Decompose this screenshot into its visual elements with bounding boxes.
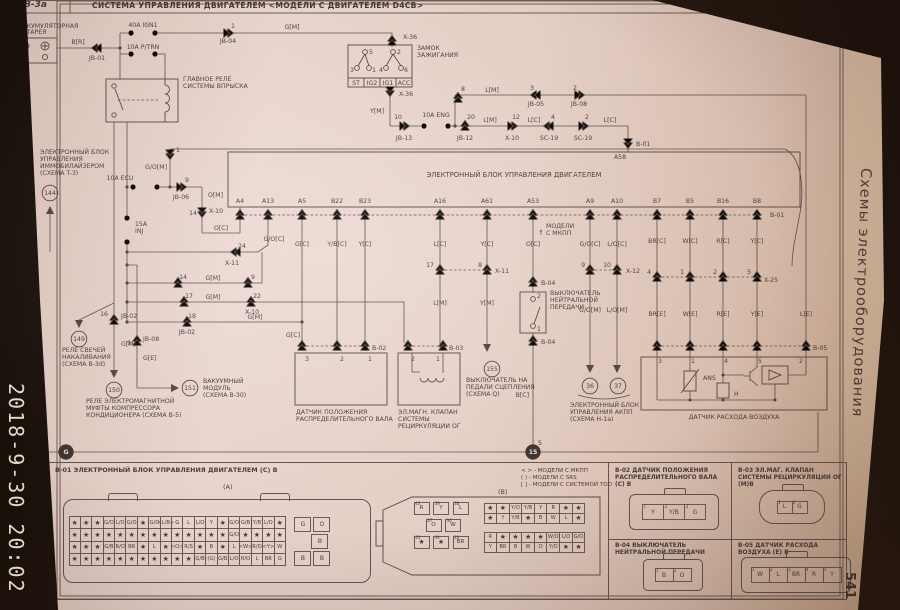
connector-pin-cell: O	[534, 542, 548, 553]
diagram-label: 2	[585, 114, 589, 121]
diagram-label: A58	[614, 154, 626, 161]
diagram-label: 2	[799, 358, 803, 365]
diagram-code: B-3a	[24, 0, 47, 10]
diagram-label: 149	[73, 336, 85, 343]
diagram-label: РЕЛЕ СВЕЧЕЙ	[62, 345, 106, 354]
pin-row: ★★★★★★★★★★★(G/B)(G)G/BL/OR/OLBRG	[69, 553, 285, 565]
diagram-label: L[E]	[800, 311, 812, 318]
diagram-label: 24	[238, 243, 246, 250]
connector-pin-cell: BR	[496, 542, 510, 553]
diagram-label: B16	[717, 198, 729, 205]
diagram-label: A9	[586, 198, 594, 205]
diagram-label: ЗАМОК	[417, 45, 440, 52]
connector-pin-cell: 4R	[805, 567, 824, 583]
diagram-label: МОДУЛЬ	[203, 385, 231, 392]
junction-dots	[118, 46, 776, 401]
diagram-label: 1	[372, 67, 376, 74]
diagram-label: 5	[369, 49, 373, 56]
diagram-label: L[M]	[483, 117, 497, 124]
diagram-label: УПРАВЛЕНИЯ АКПП	[570, 409, 633, 416]
diagram-label: ИММОБИЛАЙЗЕРОМ	[40, 161, 104, 170]
diagram-label: G	[63, 449, 68, 456]
diagram-label: 36	[586, 383, 594, 390]
pin-row: R★★★★W/OL/OG/O	[484, 532, 585, 542]
diagram-label: B7	[653, 198, 661, 205]
diagram-label: 12	[512, 114, 520, 121]
diagram-label: G[C]	[295, 241, 309, 248]
diagram-label: L[C]	[604, 117, 617, 124]
diagram-label: МОДЕЛИ	[546, 223, 575, 230]
connector-pin-cell: W	[546, 513, 560, 524]
diagram-label: G[M]	[206, 294, 221, 301]
diagram-label: 10A ENG	[422, 112, 450, 119]
connector-pin-cell: 36W	[445, 519, 461, 532]
diagram-label: 4	[551, 114, 555, 121]
b05-connector: 1W2L3BR4R5Y	[741, 557, 851, 593]
diagram-label: 10A ECU	[107, 175, 134, 182]
diagram-label: JB-04	[219, 38, 236, 45]
diagram-label: B-04	[541, 339, 555, 346]
diagram-label: (СХЕМА Q)	[466, 391, 500, 398]
diagram-label: A10	[611, 198, 623, 205]
diagram-label: X-11	[225, 260, 239, 267]
connector-pin-cell: O	[313, 517, 330, 532]
diagram-label: 10	[394, 114, 402, 121]
diagram-label: B22	[331, 198, 343, 205]
diagram-label: (СХЕМА T-3)	[40, 170, 78, 177]
connector-b-left: 40R39Y38L 37O36W 35★34★33BR	[414, 502, 473, 553]
diagram-label: X-10	[505, 135, 519, 142]
diagram-label: 1	[680, 269, 684, 276]
diagram-label: ЭЛЕКТРОННЫЙ БЛОК	[570, 400, 640, 409]
connector-pin-cell: 2L	[769, 567, 788, 583]
diagram-label: JB-08	[570, 101, 587, 108]
diagram-label: SC-19	[574, 135, 592, 142]
page-number: 541	[842, 572, 857, 599]
diagram-label: 2	[411, 356, 415, 363]
pin-row: ★★Y/OY/BYR★★	[484, 503, 585, 513]
diagram-label: R[C]	[716, 238, 729, 245]
diagram-label: B-05	[813, 345, 827, 352]
diagram-label: B[R]	[71, 39, 84, 46]
connector-pin-cell: ★	[572, 542, 586, 553]
connector-pin-cell: 2G	[792, 501, 808, 514]
diagram-label: Y[C]	[480, 241, 494, 248]
pin-row: ★YY/B★BWL★	[484, 513, 585, 523]
diagram-label: КОНДИЦИОНЕРА (СХЕМА B-5)	[86, 412, 181, 419]
diagram-label: 16	[100, 311, 108, 318]
diagram-label: R[E]	[716, 311, 729, 318]
diagram-label: L/O[M]	[607, 307, 628, 314]
diagram-label: 3	[658, 358, 662, 365]
connector-pin-cell: B	[294, 551, 311, 566]
diagram-label: ANS	[703, 375, 716, 382]
diagram-label: 10A P/TRN	[127, 44, 160, 51]
diagram-label: 17	[426, 262, 434, 269]
diagram-label: ACC	[398, 80, 411, 87]
b01-title: B-01 ЭЛЕКТРОННЫЙ БЛОК УПРАВЛЕНИЯ ДВИГАТЕ…	[55, 466, 278, 474]
diagram-label: ДАТЧИК РАСХОДА ВОЗДУХА	[689, 414, 780, 421]
connector-pin-cell: 3G	[684, 504, 706, 520]
connector-pin-cell: Y	[496, 513, 510, 524]
diagram-label: 1	[176, 147, 180, 154]
diagram-label: РАСПРЕДЕЛИТЕЛЬНОГО ВАЛА	[296, 416, 393, 423]
diagram-label: JB-08	[142, 336, 159, 343]
diagram-label: IG1	[383, 80, 394, 87]
diagram-label: 14	[179, 274, 187, 281]
diagram-label: X-36	[399, 91, 413, 98]
diagram-label: B-02	[372, 345, 386, 352]
diagram-label: 9	[251, 274, 255, 281]
connector-pin-cell: Y/B	[509, 513, 523, 524]
diagram-label: 1	[368, 356, 372, 363]
connector-pin-cell: 35★	[414, 536, 430, 549]
diagram-label: 2	[537, 293, 541, 300]
diagram-label: 1	[691, 358, 695, 365]
diagram-label: 3	[305, 356, 309, 363]
connector-b-label: (B)	[498, 488, 508, 496]
legend: < > - МОДЕЛИ С МКПП ( ) - МОДЕЛИ С SRS […	[521, 468, 612, 489]
connector-pin-cell: B	[311, 534, 328, 549]
camera-timestamp: 2018-9-30 20:02	[4, 383, 28, 594]
diagram-label: A4	[236, 198, 244, 205]
diagram-label: (СХЕМА H-1a)	[570, 416, 613, 423]
diagram-label: 2	[573, 85, 577, 92]
connector-pin-cell: ★	[559, 542, 573, 553]
panel-divider	[731, 463, 732, 599]
diagram-label: 2	[340, 356, 344, 363]
diagram-label: 14	[189, 210, 197, 217]
diagram-label: X-25	[764, 277, 778, 284]
diagram-label: JB-13	[395, 135, 412, 142]
b03-connector: 1L2G	[759, 490, 825, 524]
diagram-label: 9	[185, 177, 189, 184]
diagram-label: JB-06	[172, 194, 189, 201]
diagram-label: O[C]	[214, 225, 228, 232]
legend-item: [ ] - МОДЕЛИ С СИСТЕМОЙ TOD	[521, 482, 612, 489]
diagram-label: Y[C]	[750, 238, 764, 245]
diagram-label: ВЫКЛЮЧАТЕЛЬ НА	[466, 377, 528, 384]
diagram-label: B-03	[449, 345, 463, 352]
pin-row: ★★★G/OL/OG/O★G/O<L/B>GLL/OY★G/OG/B[Y/B]L…	[69, 517, 285, 529]
diagram-label: JB-05	[527, 101, 544, 108]
diagram-label: 5	[747, 269, 751, 276]
diagram-label: 15	[529, 449, 538, 456]
connector-pin-cell: L	[559, 513, 573, 524]
diagram-label: НЕЙТРАЛЬНОЙ	[550, 295, 598, 304]
diagram-label: 5	[538, 440, 542, 447]
diagram-label: 37	[614, 383, 622, 390]
diagram-label: G/O[M]	[145, 164, 167, 171]
diagram-label: G[M]	[248, 314, 263, 321]
connector-pin-cell: 1Y	[642, 504, 664, 520]
diagram-label: A13	[262, 198, 274, 205]
diagram-title: СИСТЕМА УПРАВЛЕНИЯ ДВИГАТЕЛЕМ <МОДЕЛИ С …	[92, 1, 423, 10]
diagram-label: G[M]	[285, 24, 300, 31]
diagram-label: X-36	[403, 34, 417, 41]
diagram-label: X-12	[626, 268, 640, 275]
diagram-label: ЭЛЕКТРОННЫЙ БЛОК	[40, 147, 110, 156]
diagram-label: A16	[434, 198, 446, 205]
connector-a-side: GO B BB	[293, 516, 331, 567]
diagram-label: 1	[436, 356, 440, 363]
diagram-label: JB-02	[178, 329, 195, 336]
diagram-label: 15A	[135, 221, 148, 228]
diagram-label: L[M]	[485, 87, 499, 94]
connector-pin-cell: ★	[521, 513, 535, 524]
diagram-label: G[C]	[286, 332, 300, 339]
b04-connector: 1B2O	[643, 559, 703, 591]
diagram-label: ВАКУУМНЫЙ	[203, 376, 244, 385]
diagram-label: O[C]	[526, 241, 540, 248]
pin-row: ★★★★★★★★★★★★★★G/O★★★★	[69, 529, 285, 541]
photo-scene: B-3a СИСТЕМА УПРАВЛЕНИЯ ДВИГАТЕЛЕМ <МОДЕ…	[0, 0, 900, 610]
diagram-label: ВЫКЛЮЧАТЕЛЬ	[550, 290, 601, 297]
connector-pin-cell: 3BR	[787, 567, 806, 583]
diagram-label: L[C]	[434, 241, 447, 248]
diagram-label: 10	[603, 262, 611, 269]
diagram-label: X-11	[495, 268, 509, 275]
connector-pin-cell: G	[294, 517, 311, 532]
connector-pin-cell: 39Y	[433, 502, 449, 515]
diagram-label: L[M]	[433, 300, 447, 307]
connector-pin-cell: Y/O	[546, 542, 560, 553]
diagram-label: УПРАВЛЕНИЯ	[40, 156, 83, 163]
diagram-label: 5	[758, 358, 762, 365]
diagram-label: BR[C]	[648, 238, 666, 245]
diagram-label: W[E]	[683, 311, 698, 318]
diagram-label: B-01	[770, 212, 784, 219]
diagram-label: JB-12	[456, 135, 473, 142]
diagram-label: B-04	[541, 280, 555, 287]
diagram-label: 144	[44, 190, 56, 197]
page-header: B-3a СИСТЕМА УПРАВЛЕНИЯ ДВИГАТЕЛЕМ <МОДЕ…	[0, 0, 843, 13]
diagram-label: IG2	[367, 80, 378, 87]
diagram-label: БАТАРЕЯ	[18, 29, 46, 36]
connector-pin-cell: 1W	[751, 567, 770, 583]
diagram-label: 1	[231, 23, 235, 30]
diagram-label: B5	[686, 198, 694, 205]
diagram-label: ↑	[538, 229, 544, 237]
diagram-label: X-10	[209, 208, 223, 215]
wires	[25, 33, 818, 452]
diagram-label: 8	[461, 86, 465, 93]
diagram-label: ПЕДАЛИ СЦЕПЛЕНИЯ	[466, 384, 535, 391]
diagram-labels: АККУМУЛЯТОРНАЯБАТАРЕЯ40A IGN110A P/TRNB[…	[18, 22, 827, 459]
diagram-label: B-01	[636, 141, 650, 148]
diagram-label: G[M]	[206, 275, 221, 282]
diagram-label: B[C]	[516, 392, 529, 399]
connector-b-pinout: 40R39Y38L 37O36W 35★34★33BR ★★Y/OY/BYR★★…	[384, 498, 601, 576]
connector-pin-cell: Y	[484, 542, 498, 553]
diagram-label: JB-02	[120, 313, 137, 320]
connector-pin-cell: B	[509, 542, 523, 553]
diagram-label: SC-19	[540, 135, 558, 142]
connector-pin-cell: ★	[484, 513, 498, 524]
connector-pin-cell: W	[521, 542, 535, 553]
diagram-label: 9	[581, 262, 585, 269]
diagram-label: НАКАЛИВАНИЯ	[62, 354, 111, 361]
diagram-label: ST	[352, 80, 360, 87]
diagram-label: Y[M]	[369, 108, 384, 115]
connector-a-label: (A)	[223, 483, 233, 491]
diagram-label: G/O[C]	[580, 241, 601, 248]
diagram-label: Y[E]	[750, 311, 764, 318]
diagram-label: ЭЛ.МАГН. КЛАПАН	[398, 409, 458, 416]
diagram-label: 4	[724, 358, 728, 365]
diagram-label: ЗАЖИГАНИЯ	[417, 52, 458, 59]
connector-pin-cell: 2Y/B	[663, 504, 685, 520]
diagram-label: INJ	[135, 228, 143, 235]
panel-divider	[608, 539, 846, 540]
connector-pin-cell: 2O	[673, 568, 692, 582]
diagram-label: O[M]	[208, 192, 223, 199]
diagram-label: 18	[188, 313, 196, 320]
diagram-label: ПЕРЕДАЧИ	[550, 304, 585, 311]
diagram-label: ДАТЧИК ПОЛОЖЕНИЯ	[296, 409, 367, 416]
diagram-label: Y/B[C]	[326, 241, 346, 248]
diagram-label: A53	[527, 198, 539, 205]
connector-pin-cell: 40R	[414, 502, 430, 515]
diagram-label: 17	[185, 293, 193, 300]
diagram-label: РЕЛЕ ЭЛЕКТРОМАГНИТНОЙ	[86, 396, 175, 405]
diagram-label: W[C]	[682, 238, 697, 245]
diagram-label: A5	[298, 198, 306, 205]
diagram-label: B8	[753, 198, 761, 205]
diagram-label: 3	[530, 85, 534, 92]
diagram-label: 9	[127, 340, 131, 347]
legend-item: < > - МОДЕЛИ С МКПП	[521, 468, 612, 475]
connector-panel: B-01 ЭЛЕКТРОННЫЙ БЛОК УПРАВЛЕНИЯ ДВИГАТЕ…	[48, 462, 847, 600]
diagram-label: СИСТЕМЫ ВПРЫСКА	[183, 83, 249, 90]
b02-title: B-02 ДАТЧИК ПОЛОЖЕНИЯ РАСПРЕДЕЛИТЕЛЬНОГО…	[615, 468, 727, 489]
diagram-label: G/O[C]	[264, 236, 285, 243]
diagram-label: 1	[537, 326, 541, 333]
connector-pin-cell: 38L	[453, 502, 469, 515]
connector-pin-cell: G	[274, 553, 286, 566]
connector-pin-cell: 5Y	[823, 567, 842, 583]
diagram-label: L/O[C]	[607, 241, 627, 248]
connector-pin-cell: 37O	[426, 519, 442, 532]
connector-pin-cell: B	[313, 551, 330, 566]
diagram-label: 22	[253, 293, 261, 300]
diagram-label: G[E]	[143, 355, 157, 362]
diagram-label: СИСТЕМЫ	[398, 416, 430, 423]
diagram-label: H	[734, 391, 739, 398]
diagram-label: 6	[404, 67, 408, 74]
diagram-label: ГЛАВНОЕ РЕЛЕ	[183, 76, 232, 83]
diagram-label: L[C]	[528, 117, 541, 124]
diagram-label: Y[M]	[479, 300, 494, 307]
connector-pin-cell: 33BR	[453, 536, 469, 549]
diagram-label: 155	[486, 366, 498, 373]
legend-item: ( ) - МОДЕЛИ С SRS	[521, 475, 612, 482]
connector-a-pinout: ★★★G/OL/OG/O★G/O<L/B>GLL/OY★G/OG/B[Y/B]L…	[63, 499, 371, 583]
pin-row: YBRBWOY/O★★	[484, 542, 585, 552]
connector-pin-cell: 34★	[433, 536, 449, 549]
diagram-label: 20	[467, 114, 475, 121]
diagram-label: 4	[647, 269, 651, 276]
connector-pin-cell: 1B	[655, 568, 674, 582]
diagram-label: (СХЕМА B-30)	[203, 392, 246, 399]
pin-row: ★★★G/BR/OBR★L★<O>R/S★B★L<W>R/O<Y>W	[69, 541, 285, 553]
diagram-label: 4	[379, 67, 383, 74]
diagram-label: 151	[184, 385, 196, 392]
diagram-label: ЭЛЕКТРОННЫЙ БЛОК УПРАВЛЕНИЯ ДВИГАТЕЛЕМ	[427, 170, 602, 179]
diagram-label: 40A IGN1	[128, 22, 157, 29]
diagram-label: A61	[481, 198, 493, 205]
diagram-label: 3	[350, 67, 354, 74]
connector-a-grid: ★★★G/OL/OG/O★G/O<L/B>GLL/OY★G/OG/B[Y/B]L…	[69, 517, 285, 566]
diagram-label: РЕЦИРКУЛЯЦИИ ОГ	[398, 423, 461, 430]
diagram-label: С МКПП	[546, 230, 572, 237]
connector-pin-cell: B	[534, 513, 548, 524]
b02-connector: 1Y2Y/B3G	[629, 494, 719, 530]
diagram-label: B23	[359, 198, 371, 205]
diagram-label: МУФТЫ КОМПРЕССОРА	[86, 405, 161, 412]
diagram-label: BR[E]	[648, 311, 665, 318]
diagram-label: (СХЕМА B-3d)	[62, 361, 105, 368]
diagram-label: 8	[478, 262, 482, 269]
connector-pin-cell: 1L	[777, 501, 793, 514]
connector-b-grids: ★★Y/OY/BYR★★★YY/B★BWL★ R★★★★W/OL/OG/OYBR…	[484, 503, 585, 561]
diagram-label: 2	[397, 49, 401, 56]
connector-pin-cell: ★	[572, 513, 586, 524]
diagram-label: 2	[713, 269, 717, 276]
diagram-label: JB-01	[88, 55, 105, 62]
diagram-label: Y[C]	[358, 241, 372, 248]
diagram-label: 150	[108, 387, 120, 394]
